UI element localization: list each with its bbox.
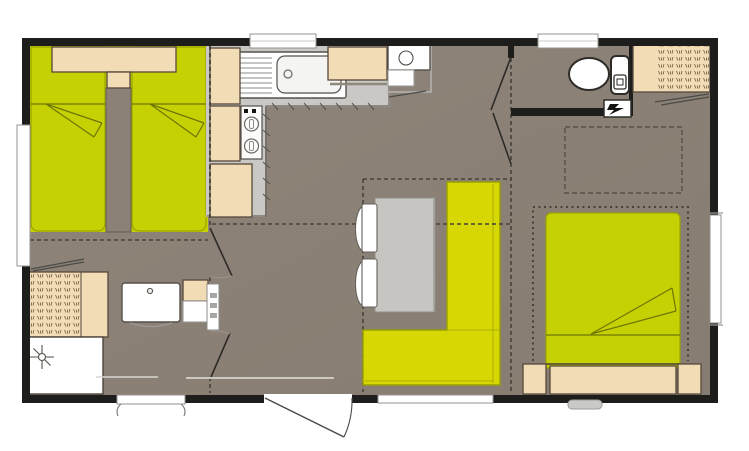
wall-top bbox=[22, 38, 718, 46]
vent-shower-room bbox=[117, 395, 185, 404]
appliance-drawer bbox=[388, 70, 414, 86]
floor-plan-screenshot bbox=[0, 0, 749, 451]
toilet-bowl bbox=[569, 58, 609, 90]
double-bed bbox=[546, 213, 680, 368]
nightstand-left bbox=[523, 364, 546, 394]
base-cabinet-3 bbox=[210, 164, 252, 217]
water-heater-dial bbox=[399, 51, 413, 65]
partition-stub bbox=[508, 44, 514, 58]
radiator-tick-2 bbox=[210, 303, 217, 308]
chair-1 bbox=[356, 204, 378, 252]
center-console bbox=[107, 72, 130, 88]
bathroom-cabinet bbox=[183, 280, 208, 301]
stove-knob-2 bbox=[252, 109, 256, 113]
radiator-tick-1 bbox=[210, 293, 217, 298]
entrance-door-gap bbox=[264, 394, 352, 404]
chair-2 bbox=[356, 259, 378, 307]
twin-bedroom bbox=[30, 46, 208, 240]
window-under-sofa bbox=[378, 395, 493, 403]
shower-tray bbox=[29, 337, 103, 394]
kitchen-cabinet-top bbox=[328, 47, 387, 80]
base-cabinet-1 bbox=[210, 48, 240, 104]
hanging-clothes-hatch bbox=[658, 46, 709, 91]
base-cabinet-2 bbox=[210, 106, 240, 161]
radiator-tick-3 bbox=[210, 313, 217, 318]
between-beds-aisle bbox=[106, 88, 131, 232]
wc-bottom-wall bbox=[511, 108, 606, 116]
window-left-bedroom bbox=[17, 125, 30, 266]
dining-table bbox=[375, 198, 435, 312]
window-right-bedroom bbox=[710, 215, 721, 323]
washbasin-faucet bbox=[147, 288, 152, 293]
hanging-clothes-hatch-left bbox=[30, 273, 80, 336]
floor-plan bbox=[0, 0, 749, 451]
headboard-shelf bbox=[52, 47, 176, 72]
exterior-step bbox=[568, 400, 602, 409]
toilet-flush bbox=[614, 75, 626, 89]
nightstand-right bbox=[678, 364, 701, 394]
bathroom-cabinet-lower bbox=[183, 301, 208, 322]
double-bed-headboard bbox=[550, 366, 676, 394]
stove-knob-1 bbox=[244, 109, 248, 113]
